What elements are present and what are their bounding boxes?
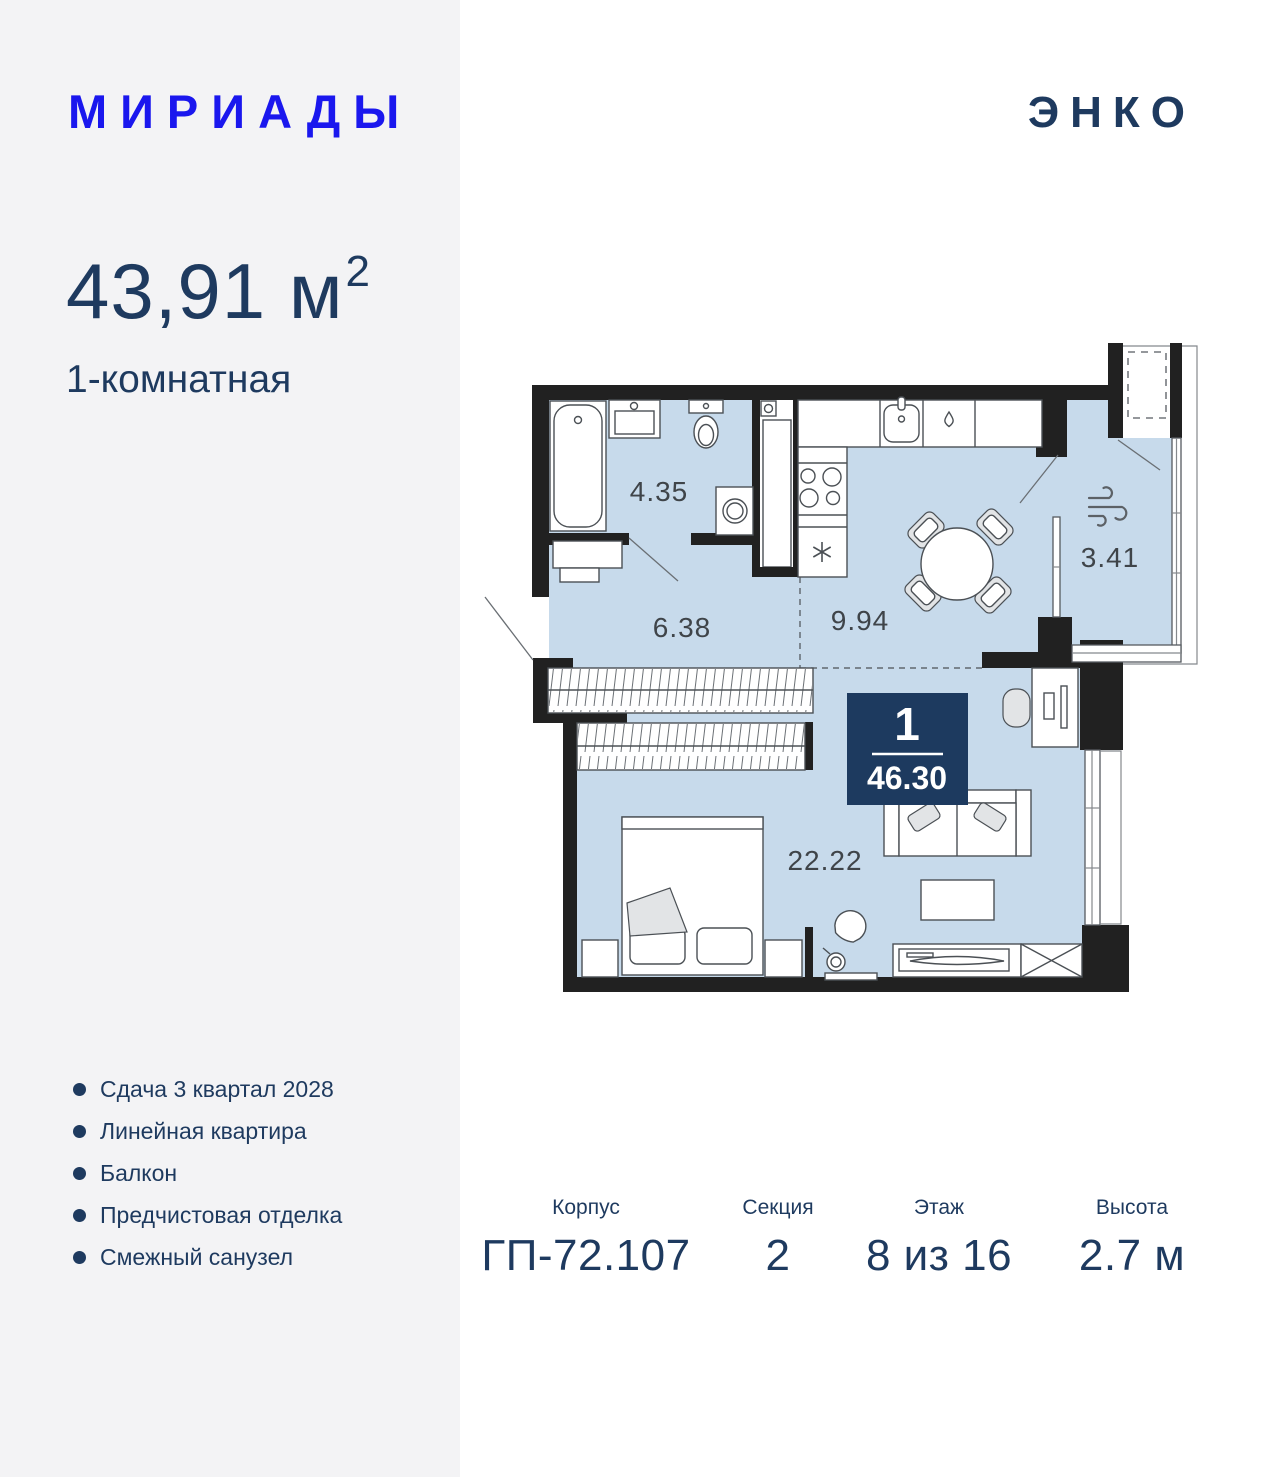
nightstand-icon: [765, 940, 802, 977]
rooms-type-label: 1-комнатная: [66, 358, 291, 402]
feature-item: Линейная квартира: [73, 1110, 342, 1152]
detail-label: Этаж: [866, 1196, 1012, 1220]
wardrobe-icon: [548, 668, 813, 713]
floor-plan: 4.35 6.38 9.94 3.41 22.22 1 46.30: [480, 340, 1200, 1010]
cabinet-cross-icon: [1021, 944, 1082, 977]
room-area-label: 9.94: [831, 605, 890, 636]
room-area-label: 4.35: [630, 476, 689, 507]
area-unit: м: [289, 247, 344, 335]
room-area-label: 22.22: [787, 845, 862, 876]
area-number: 43,91: [66, 247, 266, 335]
wardrobe-icon: [577, 723, 805, 770]
feature-label: Предчистовая отделка: [100, 1202, 342, 1229]
detail-section: Секция 2: [742, 1196, 813, 1281]
listing-page: { "header": { "project_logo": "МИРИАДЫ",…: [0, 0, 1280, 1477]
monitor-icon: [1044, 693, 1054, 719]
bullet-icon: [73, 1209, 86, 1222]
entrance-door-swing: [485, 597, 533, 660]
bed-icon: [622, 817, 763, 975]
feature-label: Сдача 3 квартал 2028: [100, 1076, 334, 1103]
feature-item: Балкон: [73, 1152, 342, 1194]
nightstand-icon: [582, 940, 618, 977]
detail-label: Высота: [1079, 1196, 1185, 1220]
bathroom-sink-icon: [609, 400, 660, 438]
detail-value: 2.7 м: [1079, 1231, 1185, 1281]
utility-shaft: [760, 400, 793, 567]
detail-value: 8 из 16: [866, 1231, 1012, 1281]
feature-label: Линейная квартира: [100, 1118, 307, 1145]
living-room-window: [1085, 750, 1121, 925]
detail-floor: Этаж 8 из 16: [866, 1196, 1012, 1281]
detail-building: Корпус ГП-72.107: [481, 1196, 690, 1281]
detail-value: ГП-72.107: [481, 1231, 690, 1281]
area-superscript: 2: [346, 247, 371, 296]
bullet-icon: [73, 1167, 86, 1180]
detail-label: Секция: [742, 1196, 813, 1220]
bathtub-icon: [550, 401, 606, 531]
detail-value: 2: [742, 1231, 813, 1281]
floor-plan-svg: 4.35 6.38 9.94 3.41 22.22 1 46.30: [480, 340, 1200, 1010]
balcony-partition-window: [1053, 517, 1060, 617]
developer-logo: ЭНКО: [1028, 88, 1196, 138]
badge-rooms-count: 1: [894, 698, 920, 750]
feature-item: Сдача 3 квартал 2028: [73, 1068, 342, 1110]
feature-label: Смежный санузел: [100, 1244, 293, 1271]
feature-label: Балкон: [100, 1160, 177, 1187]
bullet-icon: [73, 1083, 86, 1096]
coffee-table-icon: [921, 880, 994, 920]
bullet-icon: [73, 1125, 86, 1138]
kitchen-counter: [798, 397, 1042, 447]
room-area-label: 3.41: [1081, 542, 1140, 573]
ac-unit-outline: [1128, 352, 1166, 418]
bullet-icon: [73, 1251, 86, 1264]
apartment-area: 43,91 м2: [66, 246, 371, 337]
feature-item: Смежный санузел: [73, 1236, 342, 1278]
detail-height: Высота 2.7 м: [1079, 1196, 1185, 1281]
plan-badge: 1 46.30: [847, 693, 968, 805]
badge-total-area: 46.30: [867, 760, 947, 796]
tv-console-icon: [893, 944, 1021, 977]
room-area-label: 6.38: [653, 612, 712, 643]
feature-item: Предчистовая отделка: [73, 1194, 342, 1236]
project-logo: МИРИАДЫ: [68, 84, 412, 139]
feature-list: Сдача 3 квартал 2028 Линейная квартира Б…: [73, 1068, 342, 1278]
detail-label: Корпус: [481, 1196, 690, 1220]
washing-machine-icon: [716, 487, 753, 535]
duct-icon: [763, 420, 791, 567]
